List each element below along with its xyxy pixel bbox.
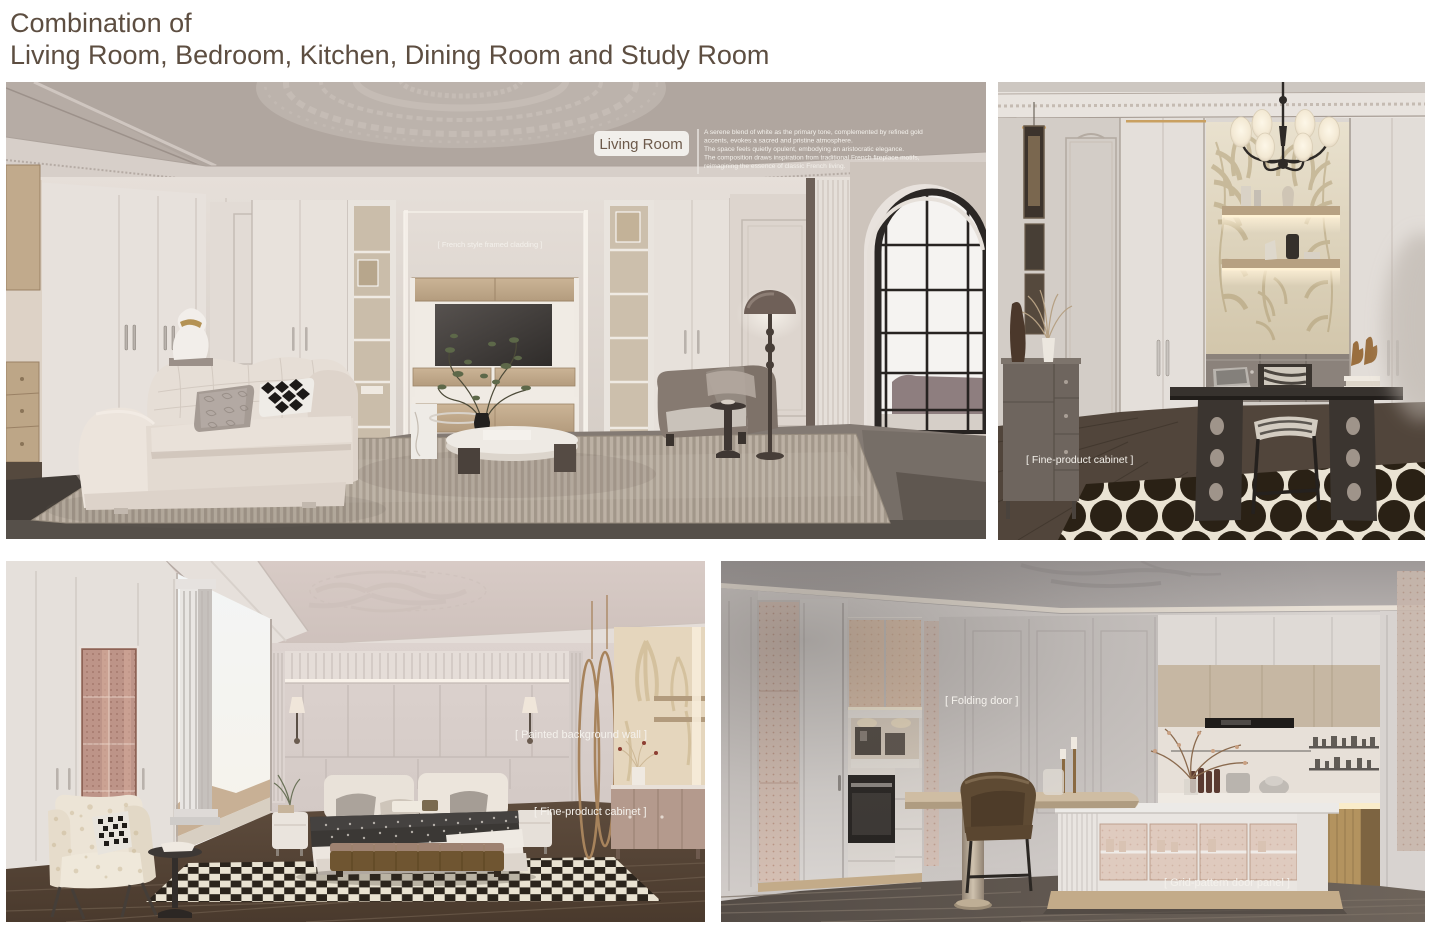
svg-text:[ Grid-pattern door panel ]: [ Grid-pattern door panel ] <box>1164 877 1290 889</box>
svg-text:[ Folding door ]: [ Folding door ] <box>945 695 1018 707</box>
svg-text:[ French style framed cladding: [ French style framed cladding ] <box>438 240 543 249</box>
svg-text:Living Room: Living Room <box>599 136 682 153</box>
svg-text:The composition draws inspirat: The composition draws inspiration from t… <box>704 155 920 162</box>
svg-text:[ Fine-product cabinet ]: [ Fine-product cabinet ] <box>534 806 647 818</box>
svg-text:The space feels quietly opulen: The space feels quietly opulent, embodyi… <box>704 146 904 153</box>
svg-text:accents, evokes a sacred and p: accents, evokes a sacred and pristine at… <box>704 138 853 145</box>
svg-text:[ Painted background wall ]: [ Painted background wall ] <box>515 729 647 741</box>
svg-text:A serene blend of white as the: A serene blend of white as the primary t… <box>704 129 923 136</box>
svg-text:reimagining the essence of cla: reimagining the essence of classic Frenc… <box>704 163 846 170</box>
svg-text:[ Fine-product cabinet ]: [ Fine-product cabinet ] <box>1026 454 1133 466</box>
